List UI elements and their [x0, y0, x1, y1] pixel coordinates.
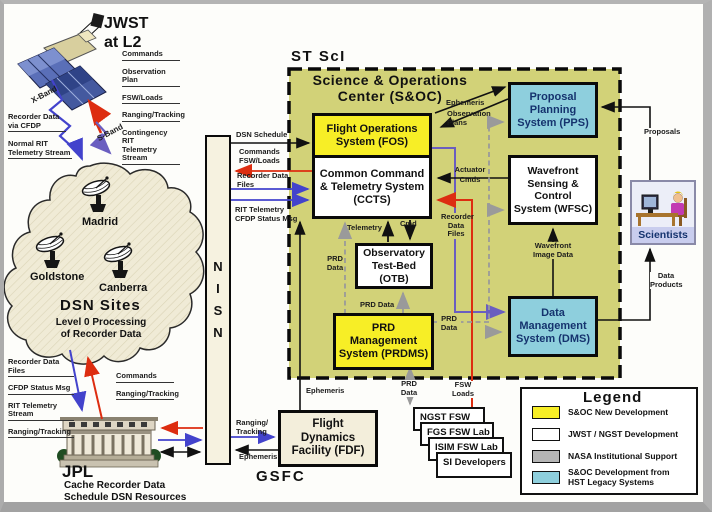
stsci-label: ST ScI	[291, 48, 346, 65]
ccts-node: Common Command & Telemetry System (CCTS)	[312, 155, 432, 219]
diagram-page: JWST at L2 Commands Observation Plan FSW…	[0, 0, 712, 512]
ephemeris-pps-label: Ephemeris	[446, 99, 484, 108]
legend-swatch-yellow	[532, 406, 560, 419]
jpl-uplink-list: Commands Ranging/Tracking	[116, 372, 174, 407]
sband-uplink-arrow	[89, 101, 101, 133]
prd-data-otb-label: PRD Data	[360, 301, 394, 310]
downlink-item: Commands	[122, 50, 180, 61]
lab-si-developers: SI Developers	[436, 452, 512, 478]
nisn-node: N I S N	[205, 135, 231, 465]
x-band-label: X-Band	[30, 85, 59, 106]
jwst-title: JWST at L2	[104, 14, 148, 52]
legend-title: Legend	[583, 389, 642, 406]
telemetry-label: Telemetry	[347, 224, 382, 233]
proposals-arrow	[602, 107, 650, 180]
legend-swatch-blue	[532, 471, 560, 484]
scientist-illustration	[632, 182, 694, 227]
prd-data-right-label: PRD Data	[437, 315, 461, 332]
prd-data-labs-label: PRD Data	[396, 380, 422, 397]
cmd-label: Cmd	[400, 220, 417, 229]
recorder-cfdp-label: Recorder Data via CFDP	[8, 113, 66, 139]
jpl-downlink-list: Recorder Data Files CFDP Status Msg RIT …	[8, 358, 74, 445]
jpl-caption: Cache Recorder Data Schedule DSN Resourc…	[64, 480, 186, 503]
s-band-label: S-Band	[96, 123, 125, 144]
recorder-files-label: Recorder Data Files	[237, 172, 288, 189]
data-products-label: Data Products	[650, 272, 682, 289]
ephemeris-nisn-label: Ephemeris	[239, 453, 277, 462]
legend-swatch-gray	[532, 450, 560, 463]
wavefront-image-label: Wavefront Image Data	[527, 242, 579, 259]
ranging-tracking-fdf-label: Ranging/ Tracking	[236, 419, 268, 436]
legend-row-new-dev: S&OC New Development	[532, 406, 668, 419]
commands-fsw-label: Commands FSW/Loads	[239, 148, 280, 165]
actuator-cmds-label: Actuator Cmds	[452, 165, 488, 185]
ephemeris-vertical-label: Ephemeris	[306, 387, 344, 396]
downlink-item: Contingency RIT Telemetry Stream	[122, 129, 180, 165]
site-madrid: Madrid	[82, 216, 118, 228]
legend-swatch-white	[532, 428, 560, 441]
scientists-label: Scientists	[632, 227, 694, 243]
antenna-canberra	[103, 242, 134, 278]
dms-node: Data Management System (DMS)	[508, 296, 598, 357]
antenna-madrid	[81, 176, 112, 212]
normal-rit-label: Normal RIT Telemetry Stream	[8, 140, 72, 166]
pps-node: Proposal Planning System (PPS)	[508, 82, 598, 138]
dsn-subtitle: Level 0 Processing of Recorder Data	[38, 317, 164, 341]
site-goldstone: Goldstone	[30, 271, 84, 283]
fos-node: Flight Operations System (FOS)	[312, 113, 432, 158]
dsn-schedule-label: DSN Schedule	[236, 131, 287, 140]
jpl-to-cloud-arrow	[88, 358, 102, 419]
data-products-arrow	[598, 249, 650, 320]
downlink-item: FSW/Loads	[122, 94, 180, 105]
nisn-label: N I S N	[213, 256, 222, 344]
jwst-downlink-list: Commands Observation Plan FSW/Loads Rang…	[122, 50, 180, 172]
proposals-label: Proposals	[644, 128, 680, 137]
legend-row-hst-legacy: S&OC Development from HST Legacy Systems	[532, 468, 670, 487]
observation-plans-label: Observation Plans	[447, 110, 491, 127]
legend-row-jwst-dev: JWST / NGST Development	[532, 428, 678, 441]
otb-node: Observatory Test-Bed (OTB)	[355, 243, 433, 289]
fdf-node: Flight Dynamics Facility (FDF)	[278, 410, 378, 467]
gsfc-label: GSFC	[256, 468, 306, 485]
antenna-goldstone	[35, 232, 66, 268]
downlink-item: Ranging/Tracking	[122, 111, 180, 122]
downlink-item: Observation Plan	[122, 68, 180, 87]
dsn-sites-title: DSN Sites	[60, 297, 141, 314]
prdms-node: PRD Management System (PRDMS)	[333, 313, 434, 370]
prd-data-ccts-label: PRD Data	[325, 255, 345, 272]
fsw-loads-label: FSW Loads	[450, 381, 476, 398]
site-canberra: Canberra	[99, 282, 147, 294]
recorder-files-dms-label: Recorder Data Files	[441, 213, 471, 239]
wfsc-node: Wavefront Sensing & Control System (WFSC…	[508, 155, 598, 225]
jpl-title: JPL	[62, 462, 93, 482]
rit-telemetry-label: RIT Telemetry CFDP Status Msg	[235, 206, 297, 223]
scientists-node: Scientists	[630, 180, 696, 245]
legend-row-nasa-support: NASA Institutional Support	[532, 450, 677, 463]
